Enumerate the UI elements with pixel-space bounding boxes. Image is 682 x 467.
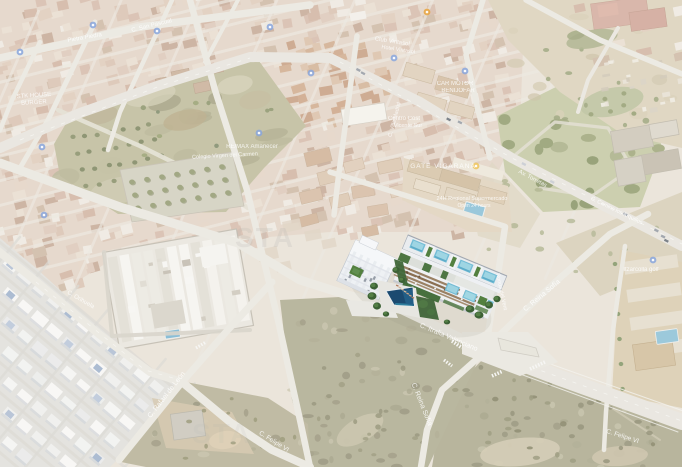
svg-text:CAR MOTOR: CAR MOTOR	[437, 81, 474, 87]
svg-text:Open 24 hours: Open 24 hours	[457, 203, 491, 209]
svg-text:24H Regional Supermercado: 24H Regional Supermercado	[437, 196, 508, 202]
svg-text:Itzarcolla golf: Itzarcolla golf	[623, 267, 659, 273]
svg-text:GATE VIGARANA: GATE VIGARANA	[410, 163, 476, 170]
svg-text:RE/MAX Amanecer: RE/MAX Amanecer	[226, 144, 278, 150]
svg-text:Vicente Sur: Vicente Sur	[394, 123, 423, 129]
svg-text:BENIJOFAR: BENIJOFAR	[441, 88, 475, 94]
